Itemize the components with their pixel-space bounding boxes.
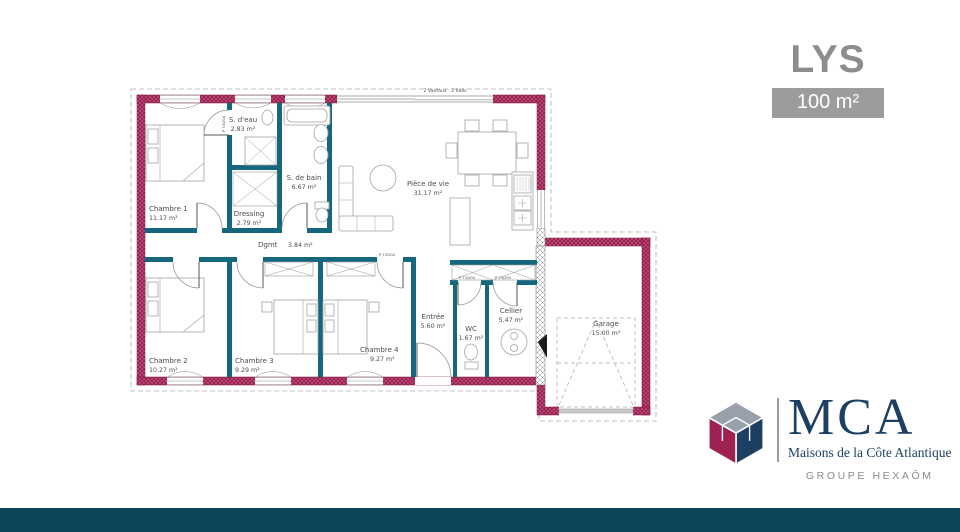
room-label: Cellier: [500, 307, 522, 315]
toilet-icon: [315, 202, 329, 222]
bathroom-sinks-icon: [314, 125, 328, 164]
mca-cube-logo-icon: [702, 398, 770, 477]
brand-group: GROUPE HEXAÔM: [788, 470, 951, 482]
floor-plan: P 73/204 P 73/204 P 73/204 P 73/204 2 Va…: [125, 80, 670, 425]
room-label: Entrée: [422, 313, 445, 321]
garage-door: [559, 407, 633, 415]
room-label: Chambre 4: [360, 346, 399, 354]
floor-plan-drawing: P 73/204 P 73/204 P 73/204 P 73/204 2 Va…: [125, 80, 670, 425]
bed-icon: [262, 300, 318, 354]
round-table-icon: [370, 165, 396, 191]
room-label: Dressing: [234, 210, 265, 218]
water-heater-icon: [501, 329, 527, 355]
room-area: 5.47 m²: [499, 317, 524, 324]
room-label: Chambre 3: [235, 357, 274, 365]
brand-block: MCA Maisons de la Côte Atlantique GROUPE…: [702, 394, 951, 482]
room-label: Chambre 2: [149, 357, 188, 365]
area-badge: 100 m²: [772, 88, 884, 118]
room-area: 15.00 m²: [592, 330, 621, 337]
room-label: Garage: [593, 320, 619, 328]
bathtub-icon: [284, 106, 330, 125]
brand-tagline: Maisons de la Côte Atlantique: [788, 445, 951, 461]
bed-icon: [146, 278, 204, 332]
room-label: Pièce de vie: [407, 180, 449, 188]
room-label: Dgmt: [258, 241, 278, 249]
room-area: 1.67 m²: [459, 335, 484, 342]
room-label: S. d'eau: [229, 116, 257, 124]
room-area: 31.17 m²: [414, 190, 443, 197]
room-area: 2.79 m²: [237, 220, 262, 227]
room-area: 6.67 m²: [292, 184, 317, 191]
room-area: 9.29 m²: [235, 367, 260, 374]
crosshatch-wall: [536, 228, 545, 385]
room-label: WC: [465, 325, 477, 333]
footer-bar: [0, 508, 960, 532]
room-label: S. de bain: [287, 174, 322, 182]
room-area: 10.27 m²: [149, 367, 178, 374]
room-area: 11.17 m²: [149, 215, 178, 222]
plan-title: LYS: [772, 40, 884, 81]
room-label: Chambre 1: [149, 205, 188, 213]
room-area: 9.27 m²: [370, 356, 395, 363]
brand-text: MCA Maisons de la Côte Atlantique GROUPE…: [788, 394, 951, 482]
kitchen-icon: [450, 172, 533, 245]
room-area: 2.83 m²: [231, 126, 256, 133]
room-area: 5.60 m²: [421, 323, 446, 330]
page: P 73/204 P 73/204 P 73/204 P 73/204 2 Va…: [0, 0, 960, 532]
room-area: 3.84 m²: [288, 242, 313, 249]
brand-divider: [777, 398, 779, 462]
door-size-label: P 73/204: [459, 276, 476, 280]
bed-icon: [146, 125, 204, 181]
bay-window-label: 2 Vantaux - 2 Rails: [424, 88, 468, 94]
door-size-label: P 73/204: [222, 115, 226, 132]
door-size-label: P 73/204: [379, 253, 396, 257]
plan-header: LYS 100 m²: [772, 40, 884, 118]
brand-name: MCA: [788, 394, 951, 442]
toilet-icon: [465, 344, 479, 369]
door-size-label: P 73/204: [495, 276, 512, 280]
